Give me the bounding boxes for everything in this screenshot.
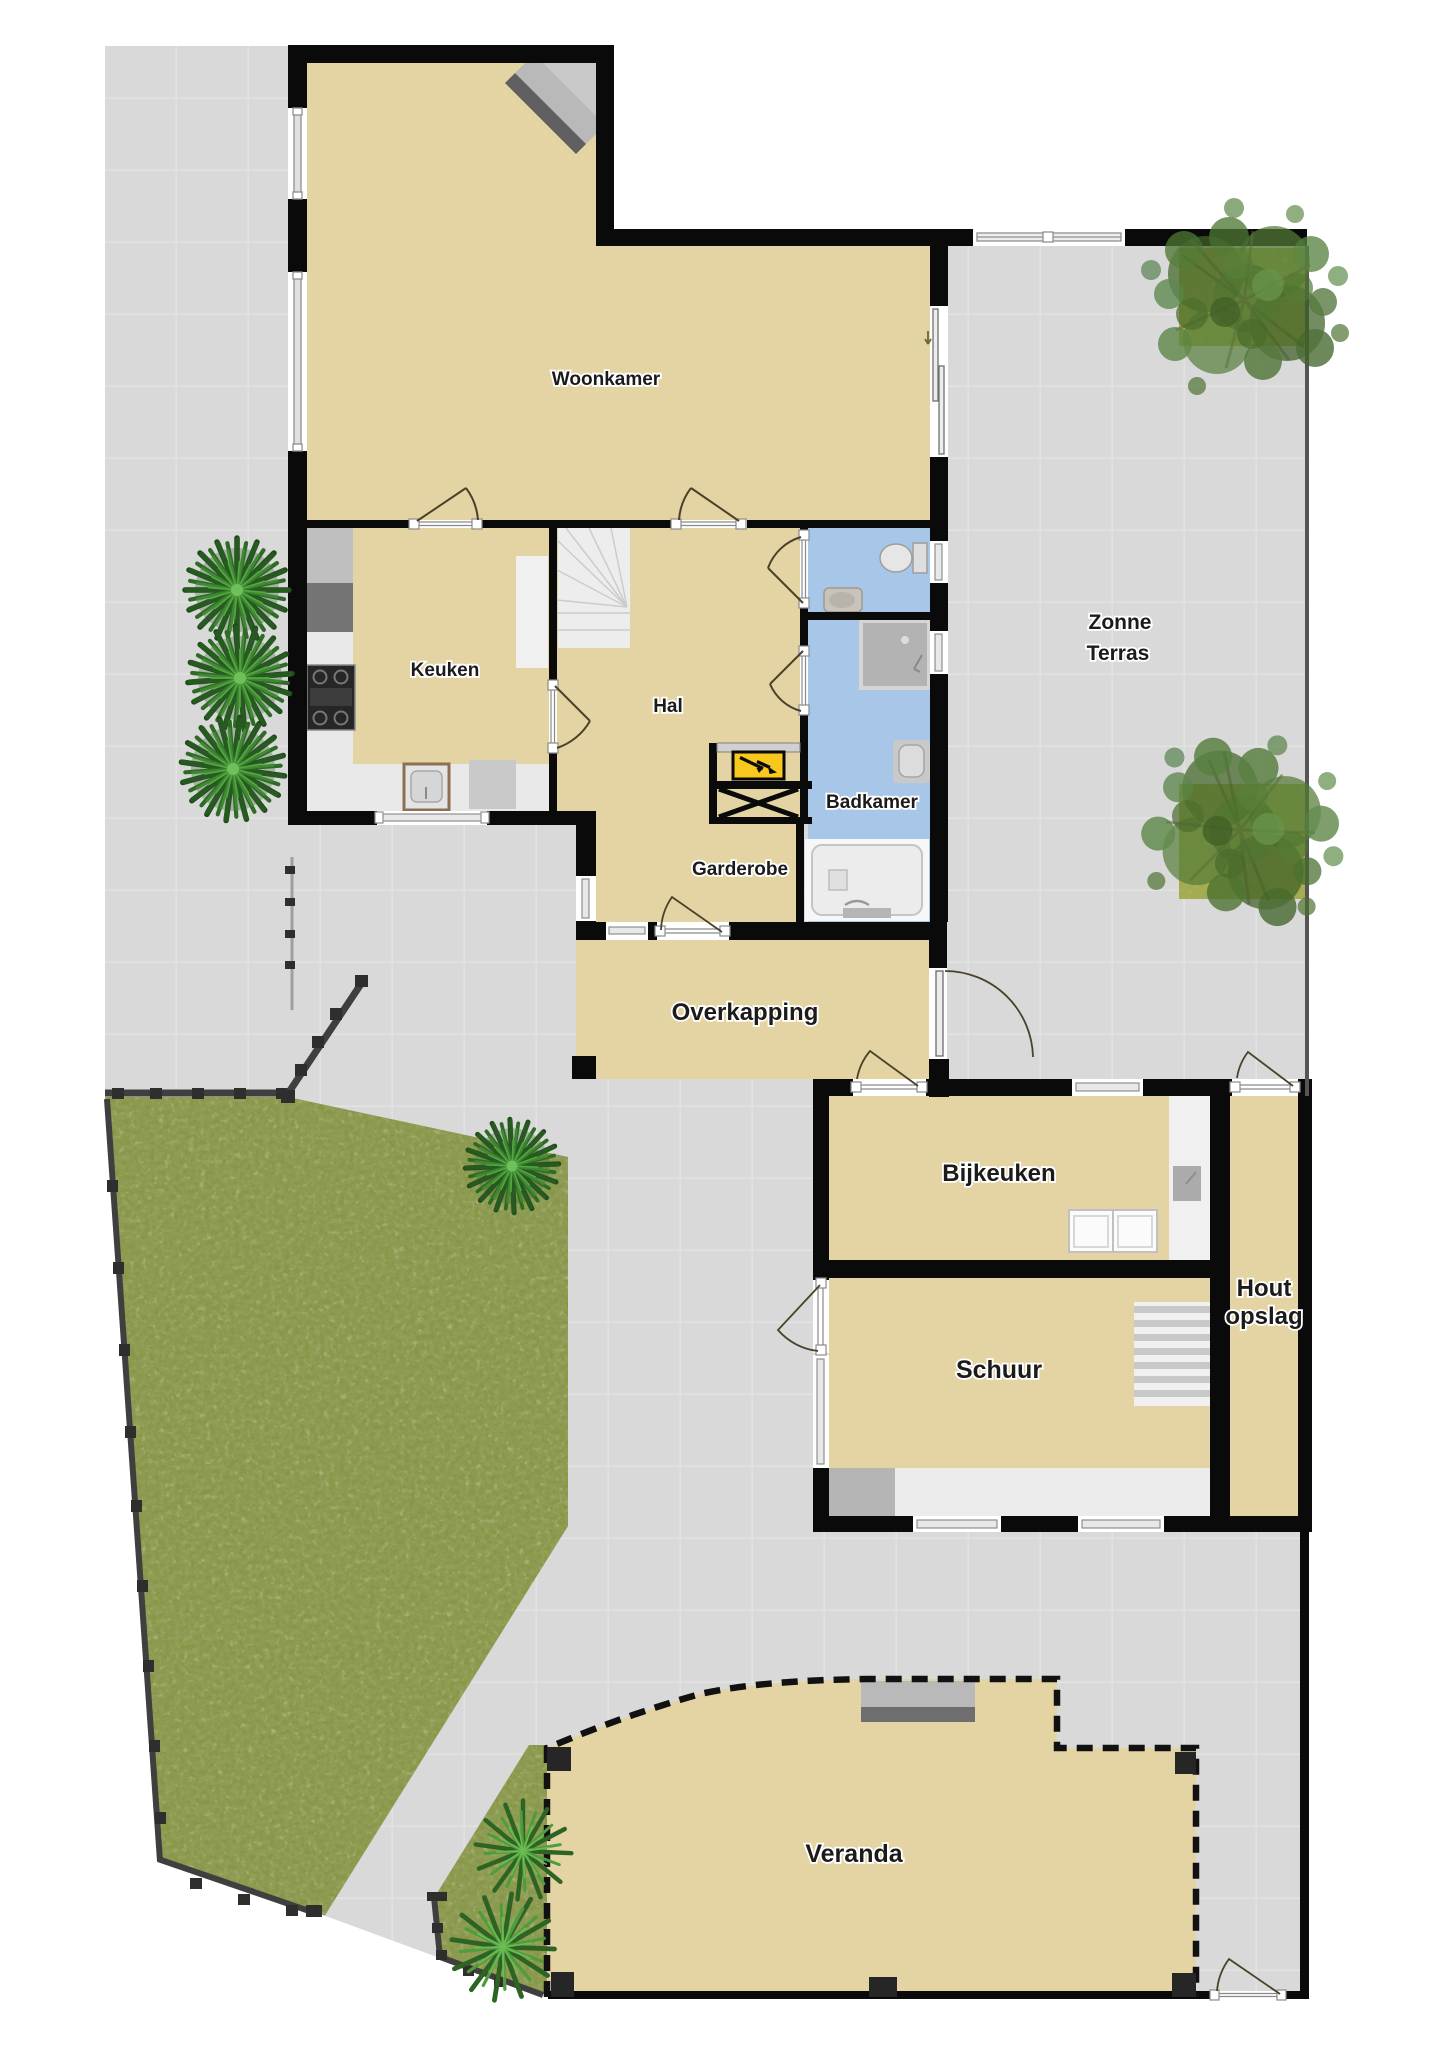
svg-text:Terras: Terras: [1087, 642, 1150, 665]
svg-text:opslag: opslag: [1225, 1303, 1302, 1330]
svg-text:Zonne: Zonne: [1089, 611, 1152, 634]
svg-text:Garderobe: Garderobe: [692, 859, 788, 880]
svg-text:Badkamer: Badkamer: [826, 792, 918, 813]
svg-text:Hal: Hal: [653, 696, 683, 717]
svg-text:Woonkamer: Woonkamer: [552, 369, 661, 390]
svg-text:Bijkeuken: Bijkeuken: [942, 1160, 1055, 1187]
svg-text:Schuur: Schuur: [956, 1356, 1042, 1384]
svg-text:Hout: Hout: [1237, 1275, 1292, 1302]
svg-text:Overkapping: Overkapping: [672, 999, 819, 1026]
svg-text:Veranda: Veranda: [805, 1840, 903, 1868]
svg-text:Keuken: Keuken: [411, 660, 480, 681]
